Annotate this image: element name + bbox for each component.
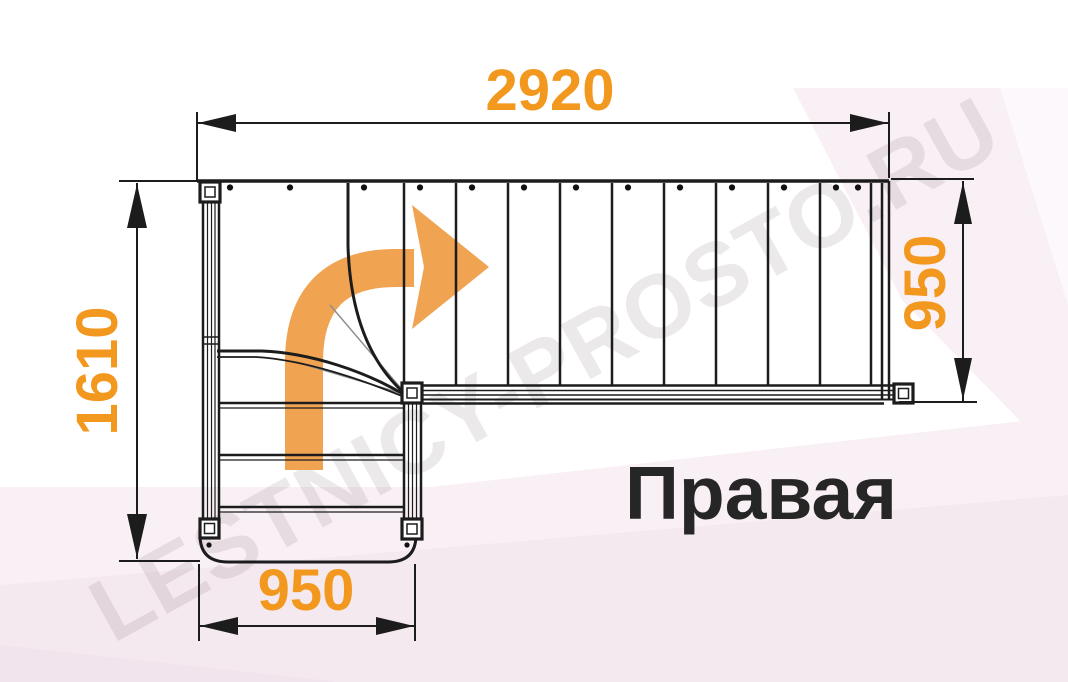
foot-right: [404, 542, 409, 547]
lower-flight-right-stringer: [404, 403, 421, 520]
upper-flight-stringer: [423, 386, 893, 404]
dimension-bottom-label: 950: [196, 561, 416, 621]
dimension-left-label: 1610: [68, 261, 128, 481]
upper-flight-risers: [404, 183, 871, 385]
direction-arrow-icon: [304, 205, 489, 470]
foot-left: [206, 542, 211, 547]
dimension-top-label: 2920: [440, 61, 660, 121]
dimension-right-label: 950: [896, 173, 956, 393]
upper-flight-dots: [227, 184, 861, 190]
orientation-label: Правая: [606, 450, 916, 536]
dimension-left: [119, 181, 200, 561]
staircase-plan-diagram: LESTNICY-PROSTO.RU: [0, 0, 1068, 682]
lower-flight-left-stringer: [203, 183, 219, 537]
